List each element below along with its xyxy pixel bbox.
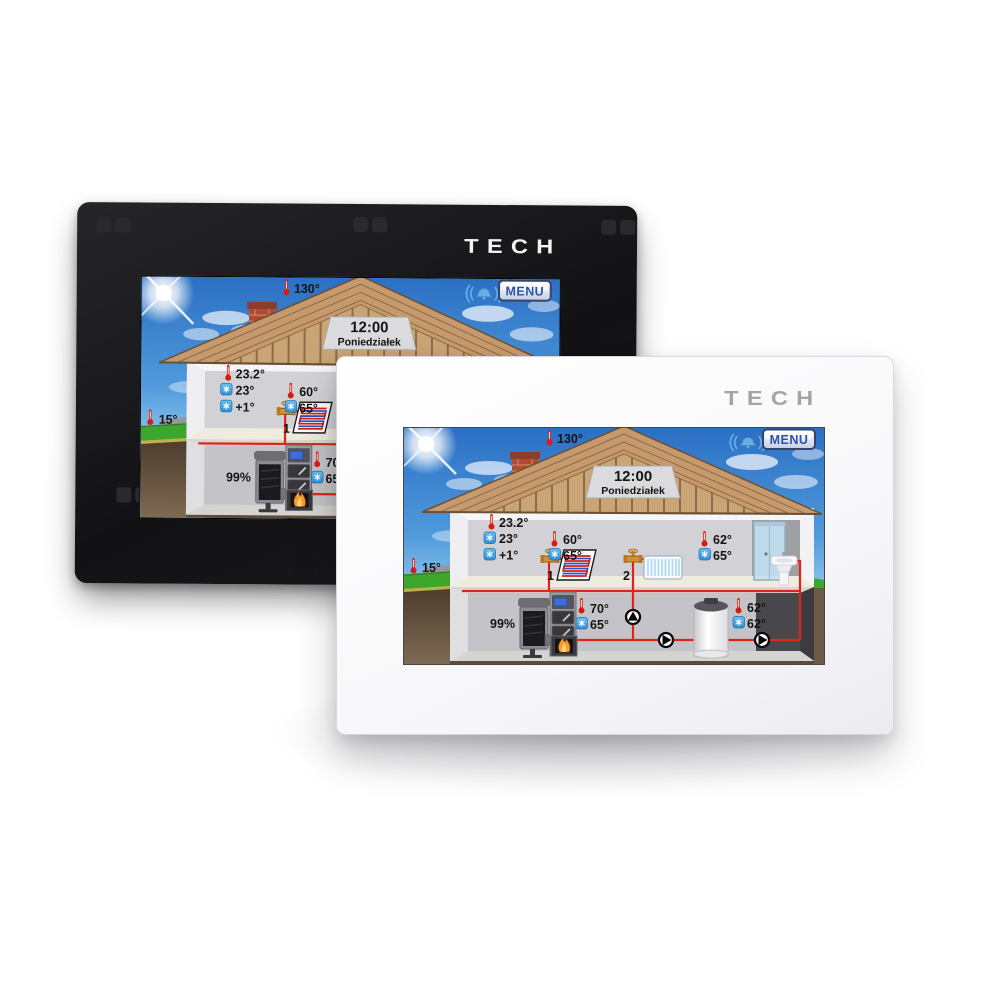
- snowflake-icon: [576, 618, 588, 630]
- pump-right-icon: [659, 633, 673, 647]
- pellet-boiler: [518, 592, 577, 658]
- boiler-fuel-level: 99%: [490, 617, 515, 631]
- radiator: [644, 556, 682, 579]
- sun-icon: [404, 428, 457, 475]
- circuit1-number: 1: [547, 569, 554, 583]
- clock-time: 12:00: [350, 319, 388, 336]
- flue-temp: 130°: [294, 282, 320, 296]
- sensor-window: [96, 217, 130, 232]
- room-correction: +1°: [235, 400, 254, 414]
- clock-day: Poniedziałek: [338, 336, 401, 349]
- sensor-window: [601, 220, 635, 235]
- circuit2-number: 2: [623, 569, 630, 583]
- room-set-temp: 23°: [236, 383, 255, 397]
- menu-button-label: MENU: [770, 433, 809, 447]
- ground-right: [813, 578, 824, 664]
- firebox: [286, 490, 312, 511]
- snowflake-icon: [220, 400, 232, 412]
- menu-button-label: MENU: [506, 284, 545, 298]
- snowflake-icon: [484, 549, 496, 561]
- snowflake-icon: [221, 383, 233, 395]
- hot-water-tank: [693, 598, 729, 659]
- pump-up-icon: [626, 610, 640, 624]
- time-panel: 12:00 Poniedziałek: [322, 317, 416, 350]
- sun-icon: [140, 277, 195, 325]
- clock-day: Poniedziałek: [601, 485, 665, 497]
- ground-left: [140, 416, 186, 517]
- brand-logo: TECH: [464, 236, 561, 260]
- circuit1-current-temp: 60°: [563, 533, 582, 547]
- pump-right-icon: [755, 633, 769, 647]
- controller-white: TECH: [336, 356, 894, 735]
- ground-left: [404, 565, 450, 664]
- circuit1-set-temp: 65°: [563, 549, 582, 563]
- brand-logo: TECH: [724, 388, 821, 411]
- time-panel: 12:00 Poniedziałek: [586, 466, 680, 498]
- room-current-temp: 23.2°: [236, 367, 265, 381]
- room-set-temp: 23°: [499, 532, 518, 546]
- snowflake-icon: [699, 549, 711, 561]
- menu-button[interactable]: MENU: [499, 281, 551, 301]
- heating-scene: 12:00 Poniedziałek: [404, 428, 824, 664]
- circuit2-current-temp: 62°: [713, 533, 732, 547]
- outside-temp: 15°: [159, 413, 178, 427]
- clock-time: 12:00: [614, 468, 652, 485]
- snowflake-icon: [285, 401, 297, 413]
- tank-current-temp: 62°: [747, 601, 766, 615]
- snowflake-icon: [733, 617, 745, 629]
- pellet-boiler: [254, 445, 313, 513]
- circuit1-number: 1: [283, 422, 290, 436]
- flue-temp: 130°: [557, 432, 583, 446]
- tank-set-temp: 62°: [747, 617, 766, 631]
- menu-button[interactable]: MENU: [763, 430, 815, 450]
- snowflake-icon: [312, 471, 324, 483]
- sensor-window: [353, 217, 387, 232]
- snowflake-icon: [549, 549, 561, 561]
- boiler-set-temp: 65°: [590, 618, 609, 632]
- circuit1-current-temp: 60°: [299, 385, 318, 399]
- touchscreen[interactable]: 12:00 Poniedziałek: [403, 427, 825, 665]
- boiler-current-temp: 70°: [590, 602, 609, 616]
- snowflake-icon: [484, 532, 496, 544]
- circuit2-set-temp: 65°: [713, 549, 732, 563]
- room-correction: +1°: [499, 549, 518, 563]
- boiler-fuel-level: 99%: [226, 470, 251, 484]
- circuit1-set-temp: 65°: [299, 401, 318, 415]
- firebox: [551, 636, 577, 656]
- room-current-temp: 23.2°: [499, 516, 528, 530]
- outside-temp: 15°: [422, 561, 441, 575]
